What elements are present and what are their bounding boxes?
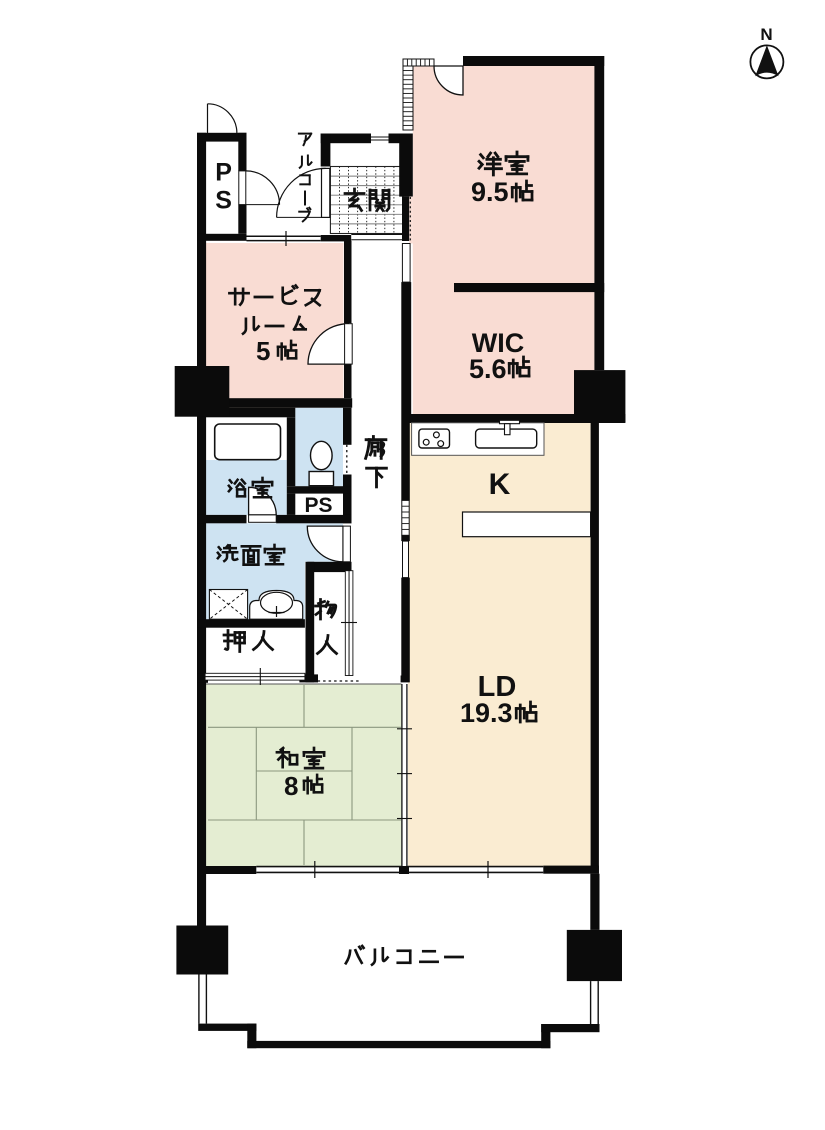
- svg-text:S: S: [215, 187, 232, 215]
- svg-text:19.3: 19.3: [460, 698, 513, 728]
- svg-text:8: 8: [284, 771, 298, 801]
- svg-text:K: K: [489, 468, 511, 501]
- svg-text:PS: PS: [304, 494, 332, 517]
- svg-text:5.6: 5.6: [469, 354, 507, 384]
- svg-text:9.5: 9.5: [471, 177, 509, 207]
- svg-text:N: N: [760, 25, 772, 44]
- svg-text:5: 5: [256, 336, 270, 366]
- svg-text:P: P: [215, 159, 232, 187]
